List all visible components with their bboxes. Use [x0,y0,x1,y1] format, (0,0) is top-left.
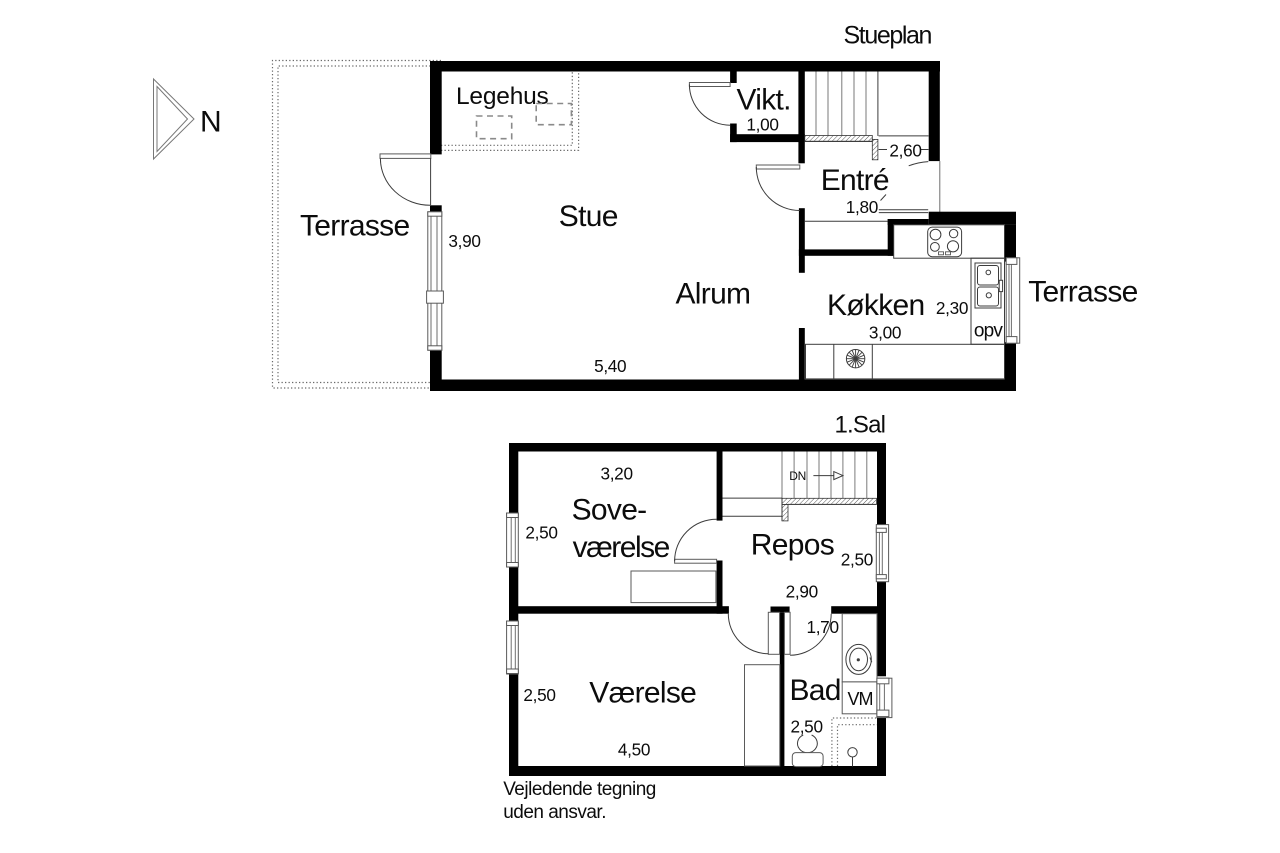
svg-text:2,50: 2,50 [841,550,873,570]
svg-text:1,80: 1,80 [846,197,878,217]
svg-text:1,00: 1,00 [746,115,778,135]
svg-text:N: N [200,106,221,139]
svg-text:værelse: værelse [573,531,670,564]
svg-text:Køkken: Køkken [827,289,925,322]
svg-text:3,00: 3,00 [869,323,901,343]
svg-text:Værelse: Værelse [589,677,696,710]
svg-text:DN: DN [789,469,806,483]
svg-text:1,70: 1,70 [806,617,838,637]
svg-text:Stue: Stue [559,200,618,233]
svg-text:uden ansvar.: uden ansvar. [503,802,606,823]
svg-text:2,30: 2,30 [936,298,968,318]
svg-text:Terrasse: Terrasse [300,210,409,243]
svg-text:Vejledende tegning: Vejledende tegning [503,779,656,800]
svg-text:Sove-: Sove- [572,494,647,527]
svg-text:5,40: 5,40 [594,356,626,376]
svg-text:2,90: 2,90 [786,581,818,601]
svg-text:Entré: Entré [821,164,889,197]
svg-text:2,50: 2,50 [525,523,557,543]
svg-text:Stueplan: Stueplan [844,22,932,50]
svg-text:2,50: 2,50 [523,685,555,705]
svg-text:Vikt.: Vikt. [737,84,791,117]
svg-text:Bad: Bad [790,674,841,707]
svg-text:3,90: 3,90 [448,231,480,251]
svg-text:Repos: Repos [751,529,834,562]
svg-text:2,50: 2,50 [790,717,822,737]
svg-text:2,60: 2,60 [889,141,921,161]
svg-text:1.Sal: 1.Sal [835,412,886,439]
svg-text:Alrum: Alrum [676,278,751,311]
svg-text:VM: VM [848,689,873,709]
svg-text:Terrasse: Terrasse [1028,276,1137,309]
svg-text:3,20: 3,20 [600,464,632,484]
svg-text:opv: opv [974,321,1004,342]
svg-text:Legehus: Legehus [456,83,549,110]
svg-text:4,50: 4,50 [618,740,650,760]
